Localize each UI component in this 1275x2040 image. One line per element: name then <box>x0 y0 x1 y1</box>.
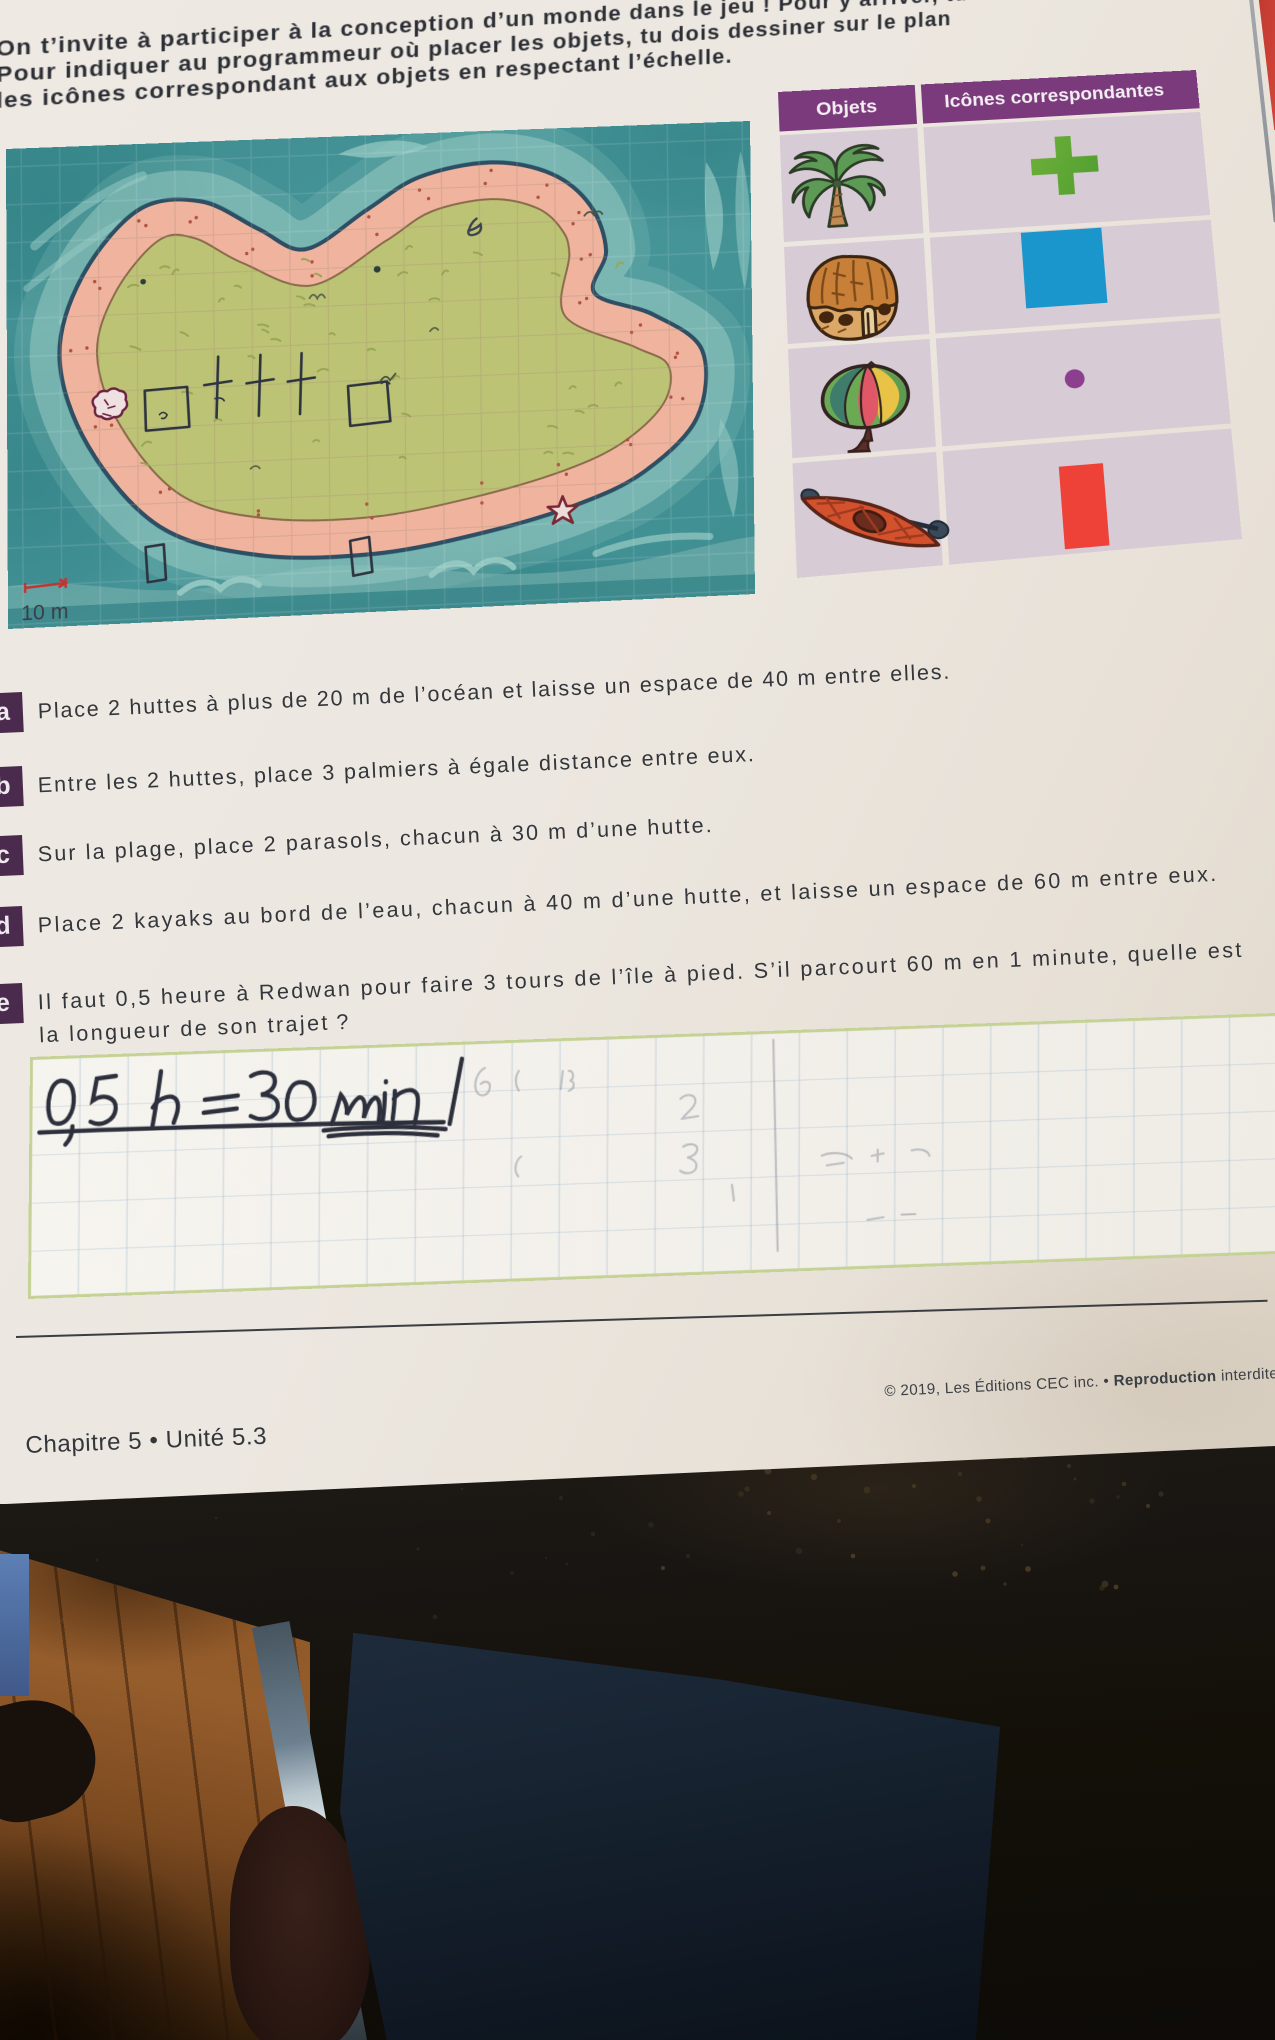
svg-text:10 m: 10 m <box>21 600 69 625</box>
